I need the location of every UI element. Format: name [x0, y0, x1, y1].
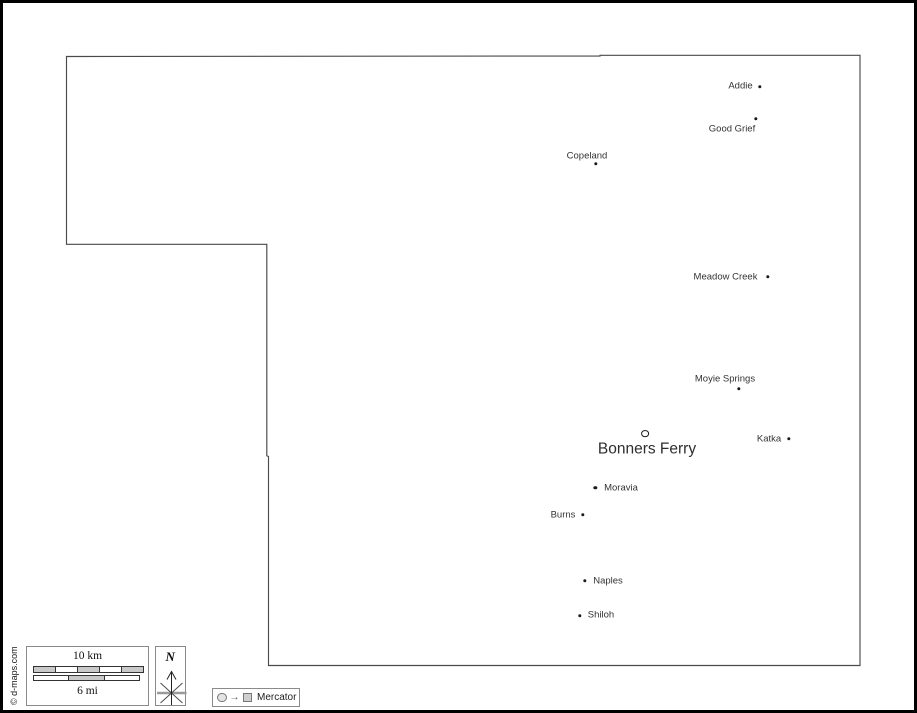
arrow-right-icon: →: [230, 693, 240, 703]
scale-segment: [69, 676, 104, 681]
city-dot: [787, 437, 790, 440]
city-dot: [583, 579, 586, 582]
city-dot: [737, 387, 740, 390]
scale-mi-label: 6 mi: [27, 685, 148, 697]
north-label: N: [156, 649, 186, 665]
north-arrow-icon: [156, 666, 188, 707]
city-label: Bonners Ferry: [598, 441, 696, 457]
city-ring-marker: [641, 430, 649, 438]
city-dot: [581, 513, 584, 516]
city-dot: [766, 275, 769, 278]
scale-segment: [78, 667, 100, 672]
copyright-text: © d-maps.com: [9, 646, 19, 705]
city-dot: [754, 117, 757, 120]
scale-segment: [34, 676, 69, 681]
scale-bar-km: [33, 666, 144, 673]
projection-box: → Mercator: [212, 688, 300, 707]
city-dot: [758, 85, 761, 88]
city-dot: [578, 614, 581, 617]
cities-layer: AddieGood GriefCopelandMeadow CreekMoyie…: [3, 3, 914, 710]
globe-circle-icon: [217, 693, 227, 703]
scale-bar-mi: [33, 675, 140, 682]
scale-segment: [122, 667, 143, 672]
scale-box: 10 km 6 mi: [26, 646, 149, 706]
city-label: Shiloh: [588, 610, 614, 620]
city-label: Moyie Springs: [695, 374, 755, 384]
flat-map-square-icon: [243, 693, 253, 703]
city-dot: [594, 162, 597, 165]
city-label: Meadow Creek: [694, 272, 758, 282]
projection-label: Mercator: [257, 692, 296, 703]
scale-segment: [34, 667, 56, 672]
city-label: Good Grief: [709, 124, 755, 134]
city-label: Burns: [551, 510, 576, 520]
scale-segment: [56, 667, 78, 672]
city-label: Copeland: [567, 151, 608, 161]
city-label: Naples: [593, 576, 623, 586]
scale-segment: [100, 667, 122, 672]
north-box: N: [155, 646, 187, 706]
city-label: Moravia: [604, 483, 638, 493]
map-frame: AddieGood GriefCopelandMeadow CreekMoyie…: [0, 0, 917, 713]
city-label: Addie: [728, 81, 752, 91]
scale-segment: [105, 676, 139, 681]
city-dot: [594, 486, 597, 489]
scale-km-label: 10 km: [27, 650, 148, 662]
city-label: Katka: [757, 434, 781, 444]
